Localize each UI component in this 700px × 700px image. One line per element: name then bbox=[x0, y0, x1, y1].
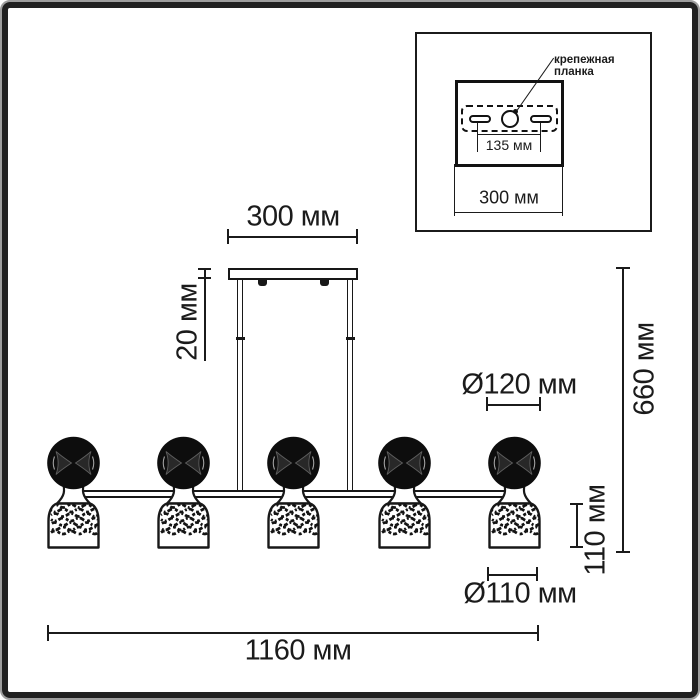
dim-sphere-diameter-label: Ø120 мм bbox=[461, 371, 576, 400]
callout-text-line1: крепежная bbox=[554, 55, 615, 67]
lamp-head bbox=[376, 436, 433, 551]
mounting-plate-inset: крепежная планка 135 мм 300 мм bbox=[415, 32, 652, 232]
dim-overall-height-tick-bottom bbox=[616, 551, 630, 553]
dim-head-height-label: 110 мм bbox=[582, 484, 611, 575]
dim-head-height-line bbox=[576, 504, 578, 547]
dim-canopy-height-label: 20 мм bbox=[174, 283, 203, 361]
dim-canopy-height-tick-bottom bbox=[198, 277, 211, 279]
lamp-head bbox=[45, 436, 102, 551]
lamp-head bbox=[155, 436, 212, 551]
dim-inset300-label: 300 мм bbox=[479, 188, 539, 209]
dim-canopy-width-line bbox=[228, 236, 358, 238]
suspension-rod-left bbox=[237, 279, 243, 492]
rod-joint-left bbox=[236, 337, 245, 340]
lamp-head bbox=[265, 436, 322, 551]
bracket-slot-right bbox=[530, 115, 552, 123]
dim-135-ext-left bbox=[477, 123, 478, 152]
canopy-clip-right bbox=[320, 279, 329, 286]
dim-canopy-width-tick-right bbox=[356, 229, 358, 244]
canopy-clip-left bbox=[258, 279, 267, 286]
dimension-diagram: крепежная планка 135 мм 300 мм bbox=[0, 0, 700, 700]
dim-overall-width-label: 1160 мм bbox=[245, 637, 352, 666]
dim-canopy-width-label: 300 мм bbox=[246, 203, 339, 232]
dim-135-ext-right bbox=[540, 123, 541, 152]
dim-overall-height-line bbox=[622, 268, 624, 552]
dim-canopy-width-tick-left bbox=[227, 229, 229, 244]
dim-shade-diameter-label: Ø110 мм bbox=[463, 580, 576, 609]
dim-135-line bbox=[477, 134, 541, 135]
dim-overall-width-tick-right bbox=[537, 625, 539, 641]
rod-joint-right bbox=[346, 337, 355, 340]
dim-overall-width-tick-left bbox=[47, 625, 49, 641]
dim-inset300-ext-left bbox=[454, 164, 455, 216]
callout-text-line2: планка bbox=[554, 67, 615, 79]
dim-overall-height-label: 660 мм bbox=[631, 322, 660, 415]
dim-canopy-height-line bbox=[204, 270, 206, 361]
dim-135-label: 135 мм bbox=[486, 137, 533, 153]
dim-sphere-diameter-line bbox=[487, 404, 540, 406]
dim-inset300-ext-right bbox=[562, 164, 563, 216]
suspension-rod-right bbox=[347, 279, 353, 492]
bracket-slot-left bbox=[469, 115, 491, 123]
lamp-head bbox=[486, 436, 543, 551]
mounting-bracket-callout: крепежная планка bbox=[554, 55, 615, 78]
dim-canopy-height-tick-top bbox=[198, 268, 211, 270]
ceiling-canopy bbox=[228, 268, 358, 280]
dim-shade-diameter-line bbox=[488, 574, 537, 576]
dim-inset300-line bbox=[454, 212, 563, 213]
dim-overall-height-tick-top bbox=[616, 267, 630, 269]
